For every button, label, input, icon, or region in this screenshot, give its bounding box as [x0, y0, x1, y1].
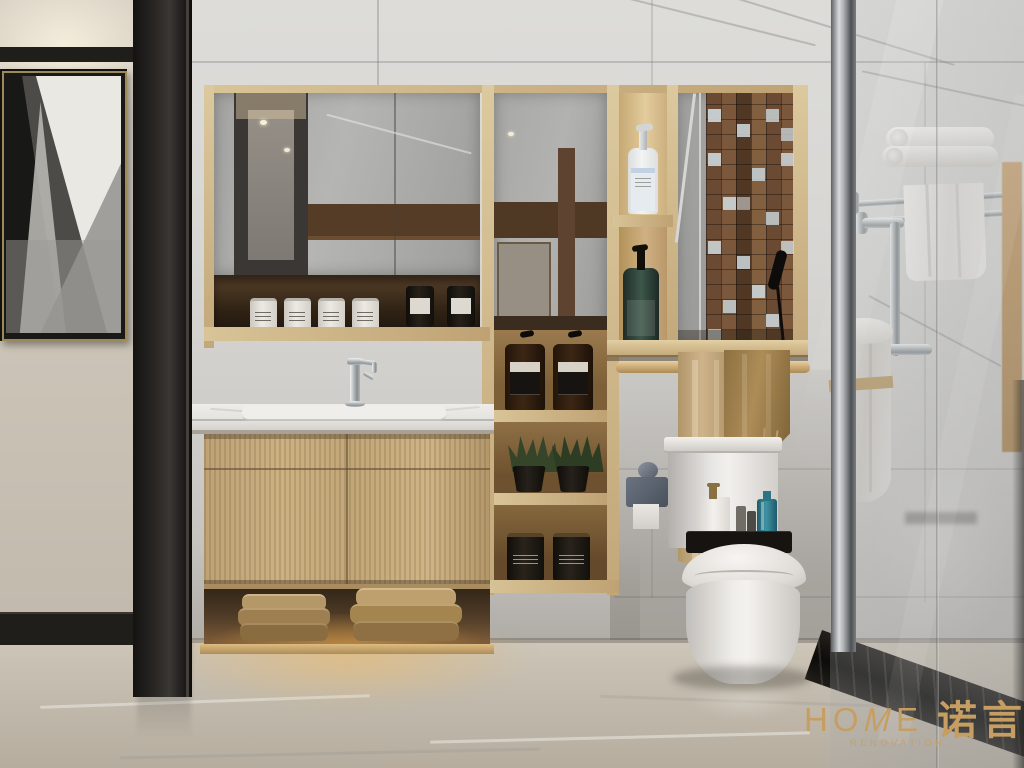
brand-word-m: M: [860, 703, 899, 736]
brand-subtitle: RENOVATION: [850, 738, 945, 749]
brand-word-right: E: [896, 701, 923, 738]
bathroom-interior-render: HOME诺言 RENOVATION: [0, 0, 1024, 768]
brand-wordmark: HOME诺言: [804, 701, 1024, 741]
brand-logo: HOME诺言 RENOVATION: [786, 695, 1024, 765]
glass-panel-seam: [936, 0, 939, 768]
shower-glass-tint: [830, 0, 1024, 768]
shower-glass-layer: [0, 0, 1024, 768]
brand-word-left: HO: [804, 701, 864, 738]
shower-door-frame: [831, 0, 856, 652]
brand-cjk: 诺言: [937, 698, 1024, 744]
